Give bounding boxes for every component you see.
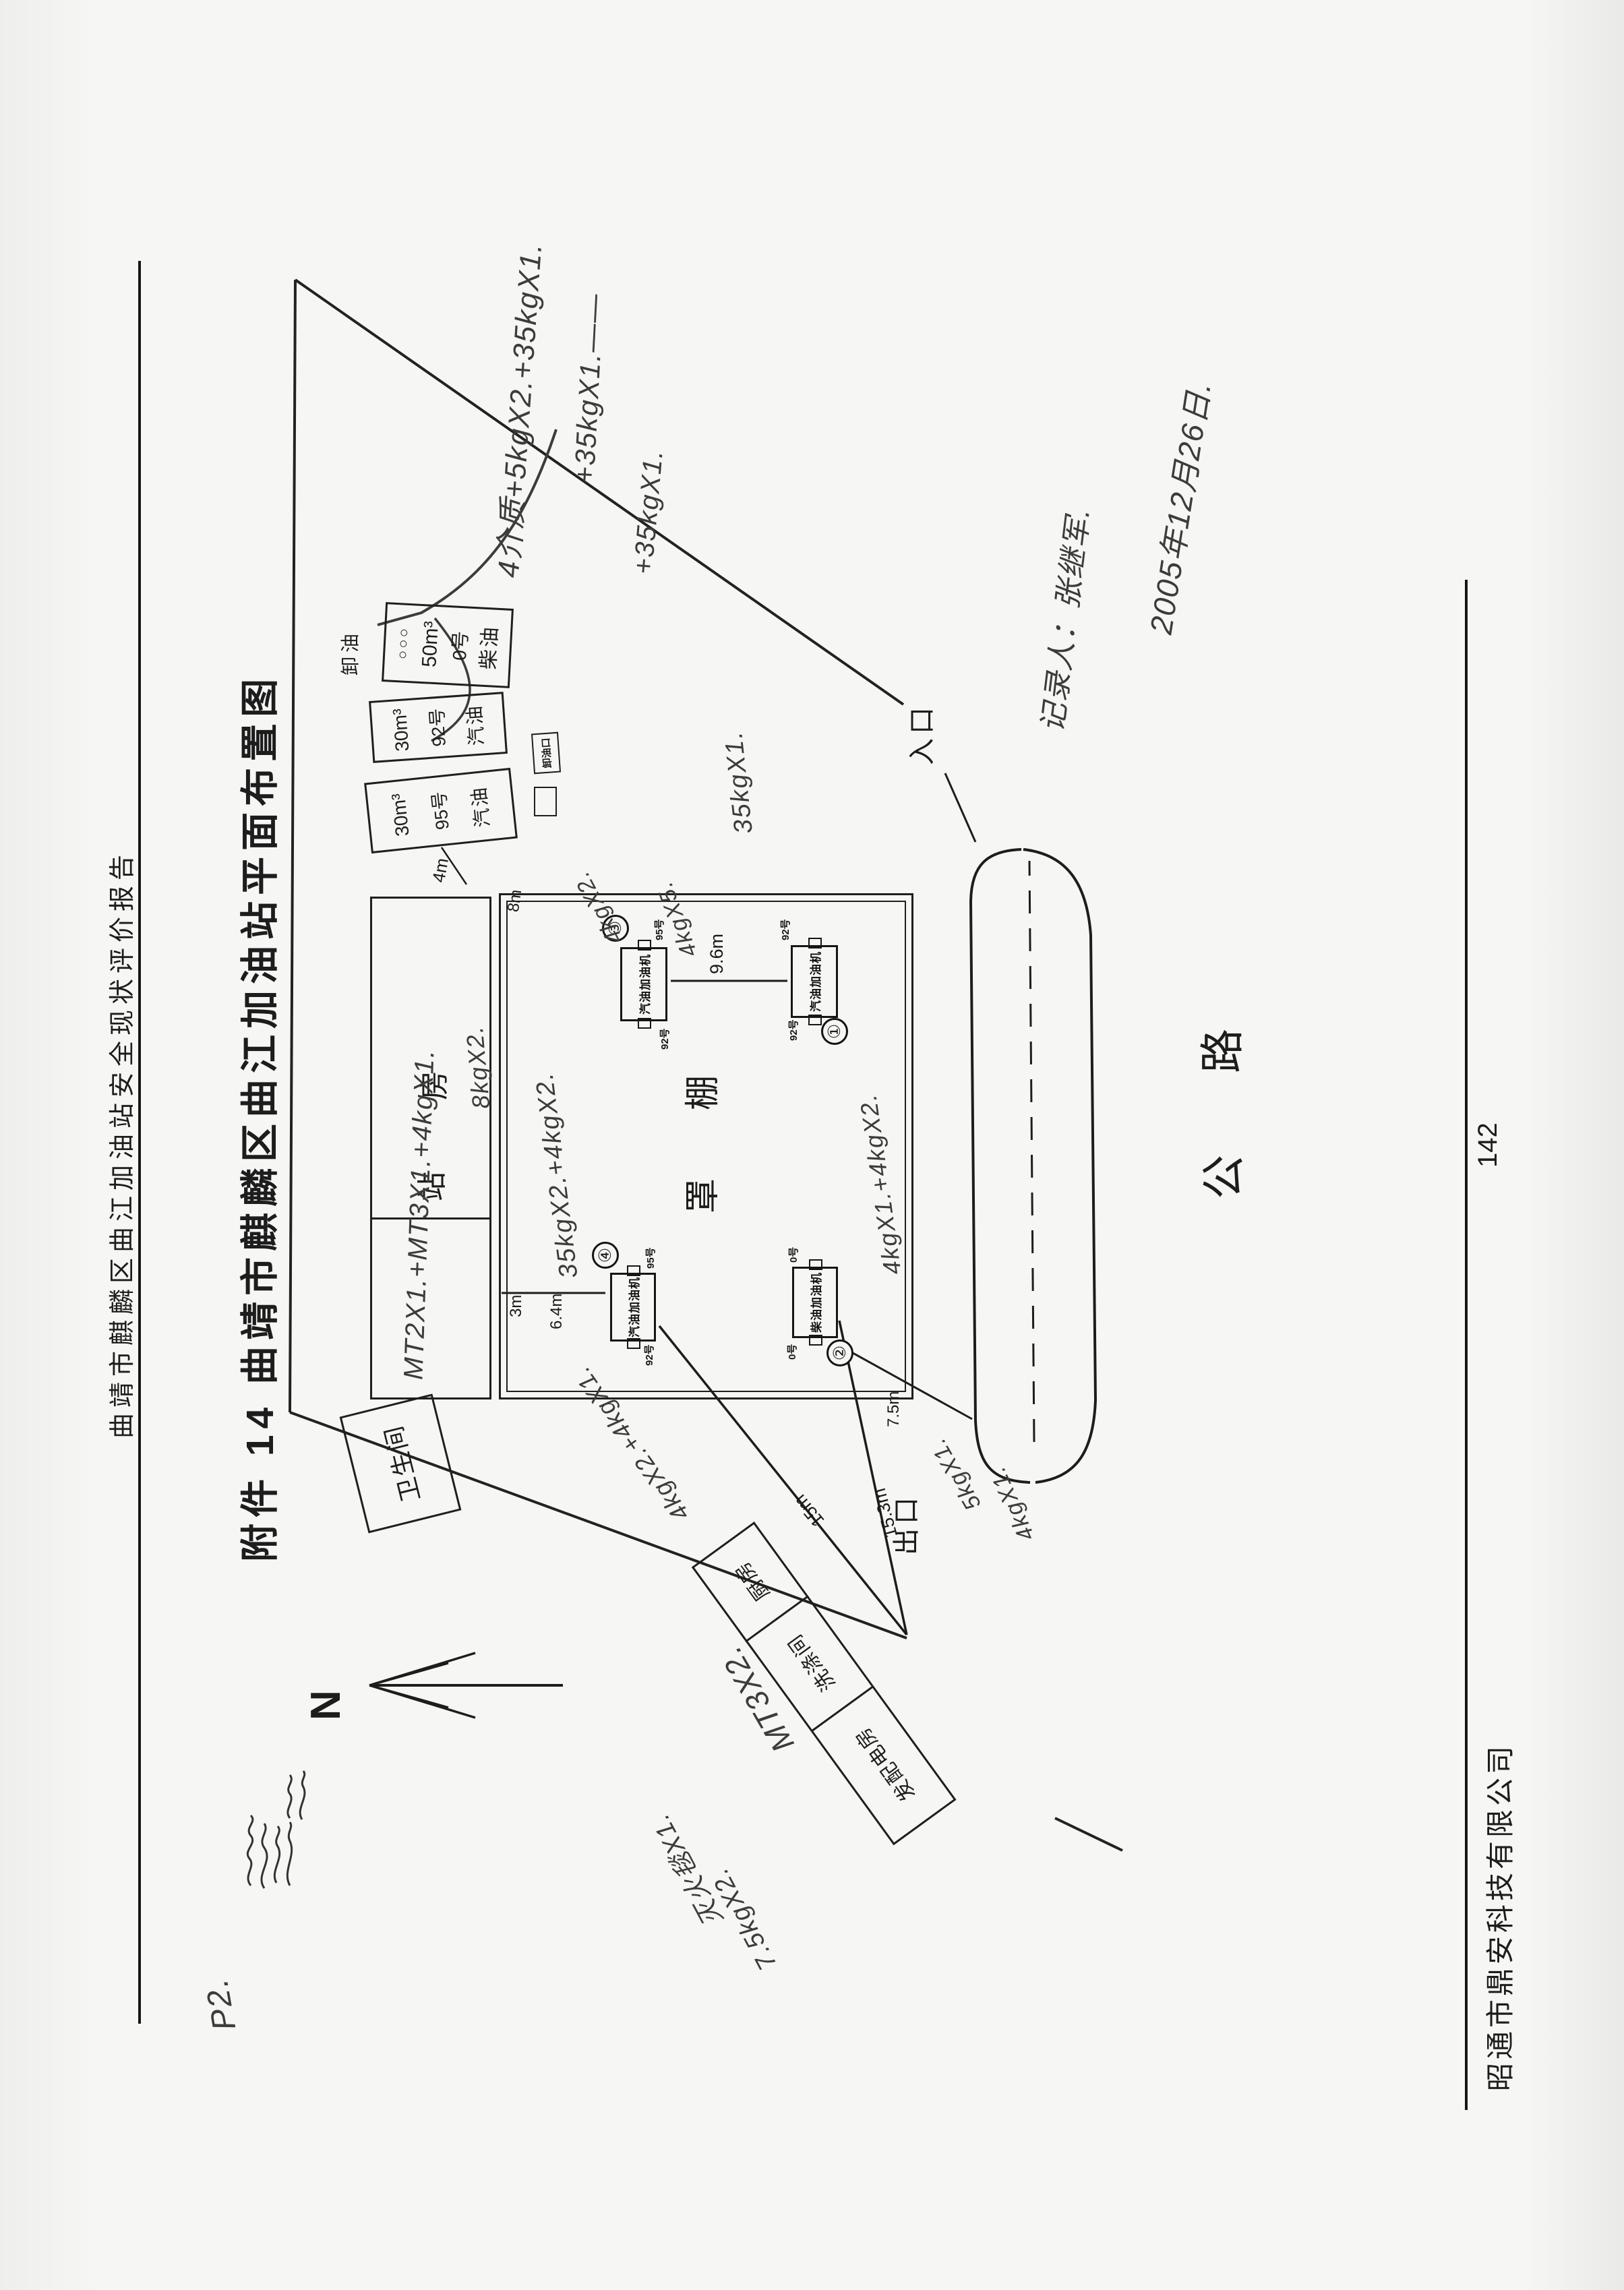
dispenser-name: 汽油加油机 — [625, 1277, 642, 1337]
nozzle-label: 95号 — [643, 1247, 657, 1269]
road-label-1: 公 — [1188, 1155, 1253, 1199]
toilet-label: 卫生间 — [374, 1421, 427, 1506]
dispenser-number: ④ — [592, 1242, 619, 1269]
tank-0-diesel-50m3: ○○○ 50m³ 0号 柴油 — [382, 602, 514, 688]
room-label: 洗涤间 — [779, 1629, 841, 1699]
tank-product: 汽油 — [464, 703, 487, 746]
scanned-page: 曲靖市麒麟区曲江加油站安全现状评价报告 附件 14 曲靖市麒麟区曲江加油站平面布… — [0, 0, 1624, 2290]
dispenser-name: 汽油加油机 — [636, 954, 653, 1015]
nozzle-label: 92号 — [778, 919, 792, 940]
room-label: 厨房 — [725, 1556, 775, 1608]
small-empty-box — [534, 787, 557, 816]
nozzle-label: 92号 — [786, 1019, 800, 1041]
tank-volume: 50m³ — [419, 621, 442, 668]
nozzle-label: 92号 — [657, 1028, 671, 1050]
tank-grade: 0号 — [450, 630, 471, 661]
nozzle-label: 0号 — [785, 1344, 799, 1360]
footer-rule — [1465, 580, 1468, 2110]
dim-4m: 4m — [428, 856, 453, 884]
dispenser-4: 汽油加油机 ④ 92号 95号 — [601, 1235, 682, 1350]
canopy-label-1: 罩 — [674, 1178, 725, 1213]
scribble-icon — [247, 1815, 291, 1888]
north-label: N — [302, 1690, 350, 1720]
tank-product: 柴油 — [478, 624, 502, 670]
page-number: 142 — [1473, 1122, 1503, 1168]
dim-3m: 3m — [507, 1295, 526, 1317]
tank-volume: 30m³ — [388, 793, 413, 838]
dispenser-2: 柴油加油机 ② 0号 0号 — [783, 1232, 864, 1346]
canopy-label-2: 棚 — [674, 1075, 725, 1110]
scribble2-icon — [288, 1771, 305, 1819]
footer-company: 昭通市鼎安科技有限公司 — [1478, 1743, 1519, 2091]
tank-92-gasoline-30m3: 30m³ 92号 汽油 — [369, 692, 508, 763]
dispenser-1: 汽油加油机 ① 92号 92号 — [782, 910, 863, 1025]
dispenser-number: ② — [826, 1339, 853, 1366]
unloading-ports-icon: ○○○ — [394, 626, 412, 659]
dispenser-name: 汽油加油机 — [806, 951, 823, 1012]
dispenser-name: 柴油加油机 — [807, 1272, 824, 1333]
tank-grade: 92号 — [427, 708, 449, 748]
unloading-port-box: 卸油口 — [531, 732, 561, 775]
room-label: 发配电房 — [846, 1722, 921, 1809]
exit-label: 出口 — [884, 1493, 924, 1555]
rotated-drawing-area: 曲靖市麒麟区曲江加油站安全现状评价报告 附件 14 曲靖市麒麟区曲江加油站平面布… — [0, 0, 1624, 2290]
nozzle-label: 92号 — [642, 1344, 656, 1366]
dim-7-5m: 7.5m — [884, 1391, 903, 1427]
tank-volume: 30m³ — [390, 708, 413, 752]
entrance-label: 入口 — [900, 703, 939, 765]
nozzle-label: 0号 — [786, 1247, 800, 1263]
dispenser-number: ① — [821, 1018, 848, 1045]
tank-product: 汽油 — [469, 785, 493, 828]
unloading-port-label: 卸油口 — [538, 737, 554, 769]
tank-grade: 95号 — [429, 791, 452, 831]
dim-9-6m: 9.6m — [706, 934, 727, 974]
road-label-2: 路 — [1186, 1029, 1251, 1073]
tank-area-label: 卸油 — [336, 630, 363, 675]
dim-6-4m: 6.4m — [547, 1294, 566, 1329]
